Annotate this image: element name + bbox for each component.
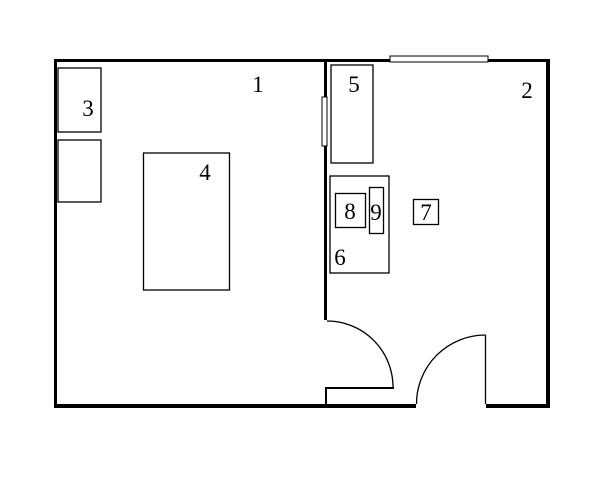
top-window bbox=[390, 56, 488, 62]
room-2-label: 2 bbox=[521, 78, 533, 103]
room-1-label: 1 bbox=[252, 72, 264, 97]
door-swing-arc-left bbox=[327, 321, 393, 387]
furniture-4 bbox=[144, 153, 230, 290]
door-stub-wall-horizontal bbox=[325, 387, 394, 389]
item-4-label: 4 bbox=[199, 160, 211, 185]
item-3-label: 3 bbox=[82, 96, 94, 121]
wall-bottom-left-segment bbox=[54, 404, 416, 408]
floor-plan: 1 2 3 4 5 6 7 8 9 bbox=[0, 0, 600, 500]
wall-left bbox=[54, 59, 57, 407]
furniture-3 bbox=[58, 68, 101, 132]
wall-bottom-right-segment bbox=[486, 404, 550, 408]
door-swing-arc-right bbox=[417, 335, 486, 404]
furniture-unlabeled bbox=[58, 140, 101, 202]
item-7-label: 7 bbox=[420, 200, 432, 225]
item-6-label: 6 bbox=[334, 245, 346, 270]
divider-window bbox=[322, 97, 327, 146]
door-stub-wall-vertical bbox=[325, 387, 327, 405]
item-5-label: 5 bbox=[348, 72, 360, 97]
wall-right bbox=[546, 59, 550, 408]
item-8-label: 8 bbox=[344, 199, 356, 224]
item-9-label: 9 bbox=[370, 200, 382, 225]
floor-plan-canvas: 1 2 3 4 5 6 7 8 9 bbox=[0, 0, 600, 500]
